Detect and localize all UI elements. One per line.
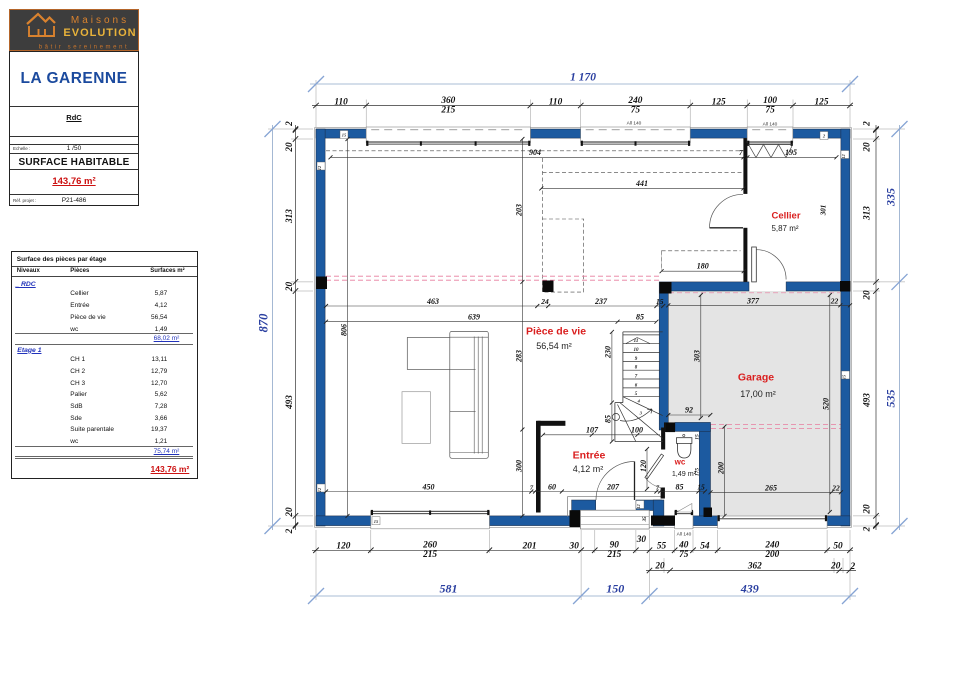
svg-text:4,12 m²: 4,12 m² — [573, 464, 604, 474]
svg-text:1 170: 1 170 — [570, 72, 596, 84]
svg-text:870: 870 — [257, 313, 271, 333]
svg-text:Pièce de vie: Pièce de vie — [526, 326, 586, 338]
svg-text:15: 15 — [842, 374, 847, 379]
svg-text:bâtir sereinement: bâtir sereinement — [39, 44, 130, 50]
svg-text:85: 85 — [676, 483, 684, 492]
svg-text:180: 180 — [697, 262, 709, 271]
svg-text:450: 450 — [422, 483, 435, 492]
svg-text:7: 7 — [530, 485, 534, 492]
svg-text:2: 2 — [863, 121, 873, 127]
svg-text:4: 4 — [637, 398, 641, 403]
svg-text:Cellier: Cellier — [771, 211, 800, 222]
svg-text:20: 20 — [863, 504, 873, 515]
svg-text:All 140: All 140 — [677, 532, 692, 538]
svg-text:100: 100 — [631, 426, 643, 435]
svg-text:Maisons: Maisons — [71, 15, 129, 26]
svg-text:12: 12 — [636, 504, 641, 509]
svg-text:12: 12 — [841, 154, 846, 159]
svg-text:24: 24 — [540, 297, 549, 306]
svg-text:20: 20 — [830, 562, 841, 572]
svg-text:20: 20 — [285, 507, 295, 518]
svg-text:125: 125 — [712, 97, 726, 107]
svg-text:303: 303 — [693, 350, 702, 363]
svg-text:120: 120 — [639, 460, 648, 472]
svg-text:10: 10 — [634, 348, 640, 353]
svg-text:175: 175 — [695, 468, 701, 477]
svg-text:75: 75 — [679, 550, 689, 560]
svg-text:20: 20 — [285, 282, 295, 293]
svg-text:150: 150 — [606, 582, 624, 596]
svg-text:283: 283 — [515, 350, 524, 363]
svg-text:60: 60 — [548, 483, 556, 492]
svg-text:92: 92 — [685, 406, 693, 415]
svg-text:335: 335 — [884, 188, 898, 207]
svg-text:55: 55 — [657, 542, 667, 552]
svg-text:15: 15 — [656, 297, 664, 306]
svg-text:22: 22 — [831, 483, 840, 492]
svg-text:215: 215 — [422, 550, 437, 560]
svg-text:3: 3 — [639, 411, 643, 416]
svg-text:120: 120 — [336, 542, 350, 552]
svg-text:377: 377 — [746, 296, 760, 305]
svg-text:All 140: All 140 — [763, 122, 778, 128]
svg-text:215: 215 — [606, 550, 621, 560]
svg-text:20: 20 — [654, 562, 665, 572]
svg-text:300: 300 — [515, 460, 524, 473]
svg-text:463: 463 — [426, 297, 439, 306]
svg-text:85: 85 — [636, 313, 644, 322]
svg-text:207: 207 — [606, 483, 620, 492]
svg-text:265: 265 — [764, 483, 777, 492]
svg-text:30: 30 — [569, 542, 580, 552]
svg-text:493: 493 — [285, 395, 295, 410]
svg-text:125: 125 — [815, 97, 829, 107]
svg-text:215: 215 — [440, 105, 455, 115]
svg-text:Entrée: Entrée — [573, 450, 606, 462]
svg-text:203: 203 — [515, 204, 524, 217]
svg-text:195: 195 — [785, 148, 797, 157]
svg-text:493: 493 — [863, 393, 873, 408]
svg-text:35: 35 — [643, 516, 648, 523]
svg-text:15: 15 — [697, 483, 705, 492]
svg-text:15: 15 — [342, 133, 347, 138]
svg-text:230: 230 — [603, 346, 612, 359]
svg-text:75: 75 — [631, 105, 641, 115]
svg-text:362: 362 — [747, 562, 762, 572]
svg-text:200: 200 — [764, 550, 779, 560]
svg-text:2: 2 — [285, 528, 295, 534]
svg-text:313: 313 — [863, 206, 873, 221]
svg-text:237: 237 — [594, 297, 608, 306]
svg-text:806: 806 — [340, 324, 349, 336]
svg-text:201: 201 — [522, 542, 537, 552]
svg-text:11: 11 — [634, 339, 639, 344]
svg-text:85: 85 — [603, 415, 612, 423]
svg-text:904: 904 — [529, 148, 541, 157]
svg-text:200: 200 — [717, 462, 726, 475]
svg-text:12: 12 — [317, 165, 322, 170]
svg-text:7: 7 — [739, 149, 743, 157]
svg-text:520: 520 — [822, 398, 831, 410]
svg-text:110: 110 — [334, 97, 348, 107]
svg-text:313: 313 — [285, 209, 295, 224]
svg-text:7: 7 — [656, 485, 660, 492]
svg-text:441: 441 — [635, 179, 648, 188]
svg-text:54: 54 — [700, 542, 710, 552]
svg-text:2: 2 — [863, 526, 873, 532]
svg-text:20: 20 — [863, 142, 873, 153]
svg-text:56,54 m²: 56,54 m² — [536, 341, 572, 351]
svg-text:17,00 m²: 17,00 m² — [740, 389, 776, 399]
svg-text:301: 301 — [820, 205, 828, 217]
svg-text:20: 20 — [285, 142, 295, 153]
svg-text:581: 581 — [440, 582, 458, 596]
svg-text:2: 2 — [849, 562, 855, 572]
svg-text:75: 75 — [765, 105, 775, 115]
svg-text:12: 12 — [317, 487, 322, 492]
svg-text:wc: wc — [674, 458, 686, 467]
svg-text:1,49 m²: 1,49 m² — [672, 469, 697, 478]
svg-text:639: 639 — [468, 313, 480, 322]
svg-text:All 140: All 140 — [627, 121, 642, 127]
svg-text:15: 15 — [695, 434, 701, 440]
svg-text:30: 30 — [636, 535, 647, 545]
svg-text:107: 107 — [586, 426, 599, 435]
svg-text:20: 20 — [863, 290, 873, 301]
svg-text:535: 535 — [884, 390, 898, 408]
svg-text:EVOLUTION: EVOLUTION — [63, 27, 136, 39]
svg-text:Garage: Garage — [738, 372, 774, 384]
svg-text:110: 110 — [549, 97, 563, 107]
svg-text:22: 22 — [830, 296, 839, 305]
svg-text:15: 15 — [374, 519, 379, 524]
svg-text:50: 50 — [833, 542, 843, 552]
svg-text:439: 439 — [740, 582, 759, 596]
svg-text:5,87 m²: 5,87 m² — [771, 224, 798, 233]
svg-text:2: 2 — [285, 121, 295, 127]
